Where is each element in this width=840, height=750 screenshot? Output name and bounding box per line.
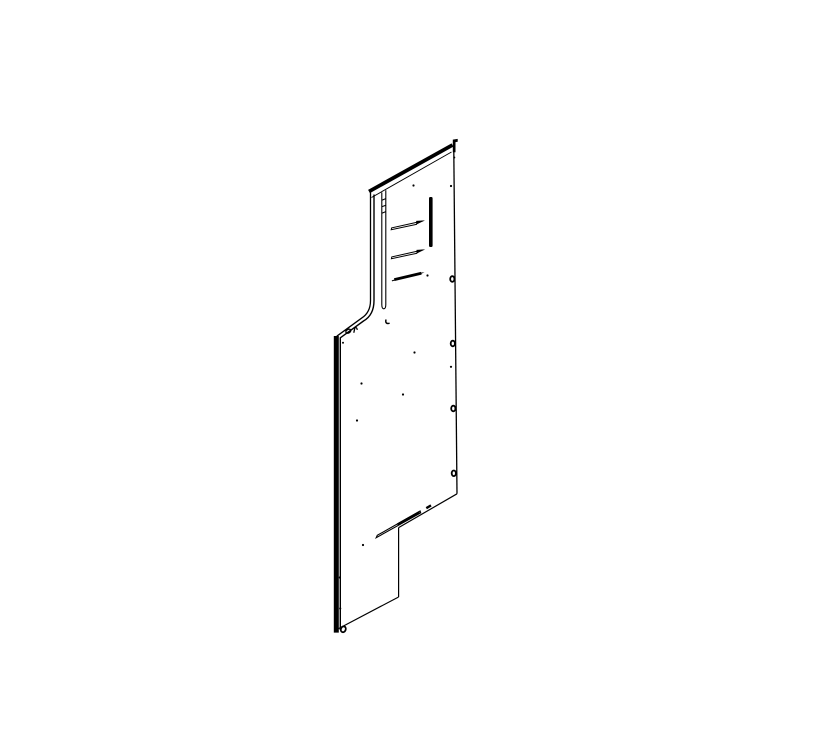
pilot-hole-1 [412, 184, 414, 186]
bend-relief-hook [386, 320, 390, 324]
step-edge [399, 494, 457, 528]
top-edge-outer [369, 145, 453, 192]
shoulder-keyhole-mark [354, 328, 358, 333]
vertical-slot [429, 197, 433, 247]
pilot-hole-6 [413, 351, 415, 353]
right-fold-hole-3 [451, 406, 455, 412]
right-edge [454, 151, 457, 494]
bottom-edge [339, 597, 399, 629]
pilot-hole-11 [362, 544, 364, 546]
pilot-hole-8 [360, 382, 362, 384]
pilot-hole-12 [339, 576, 341, 578]
technical-drawing-page [0, 0, 840, 750]
right-fold-hole-4 [452, 471, 456, 477]
pilot-hole-2 [450, 185, 452, 187]
step-edge-notch [426, 505, 431, 508]
pilot-hole-10 [356, 419, 358, 421]
panel-svg [0, 0, 840, 750]
pilot-hole-9 [402, 393, 404, 395]
pilot-hole-3 [453, 157, 455, 159]
right-fold-hole-2 [451, 341, 455, 347]
louver-1-tip [416, 220, 425, 224]
pilot-hole-5 [342, 342, 344, 344]
left-edge-inner [340, 195, 374, 631]
flange-channel [382, 190, 386, 308]
louver-3-body [394, 273, 421, 279]
corner-tab [453, 139, 458, 152]
left-edge-outer [337, 193, 371, 337]
bottom-left-hole [340, 626, 347, 633]
bottom-slot-overlay [398, 512, 420, 524]
right-fold-hole-1 [450, 276, 454, 282]
pilot-hole-13 [339, 607, 341, 609]
top-edge-inner [372, 152, 452, 198]
panel-drawing-root [336, 139, 457, 633]
pilot-hole-4 [426, 274, 428, 276]
channel-tick-1 [382, 199, 386, 201]
channel-tick-3 [382, 212, 386, 214]
channel-tick-2 [382, 205, 386, 207]
louver-2-tip [417, 249, 426, 253]
pilot-hole-7 [450, 366, 452, 368]
